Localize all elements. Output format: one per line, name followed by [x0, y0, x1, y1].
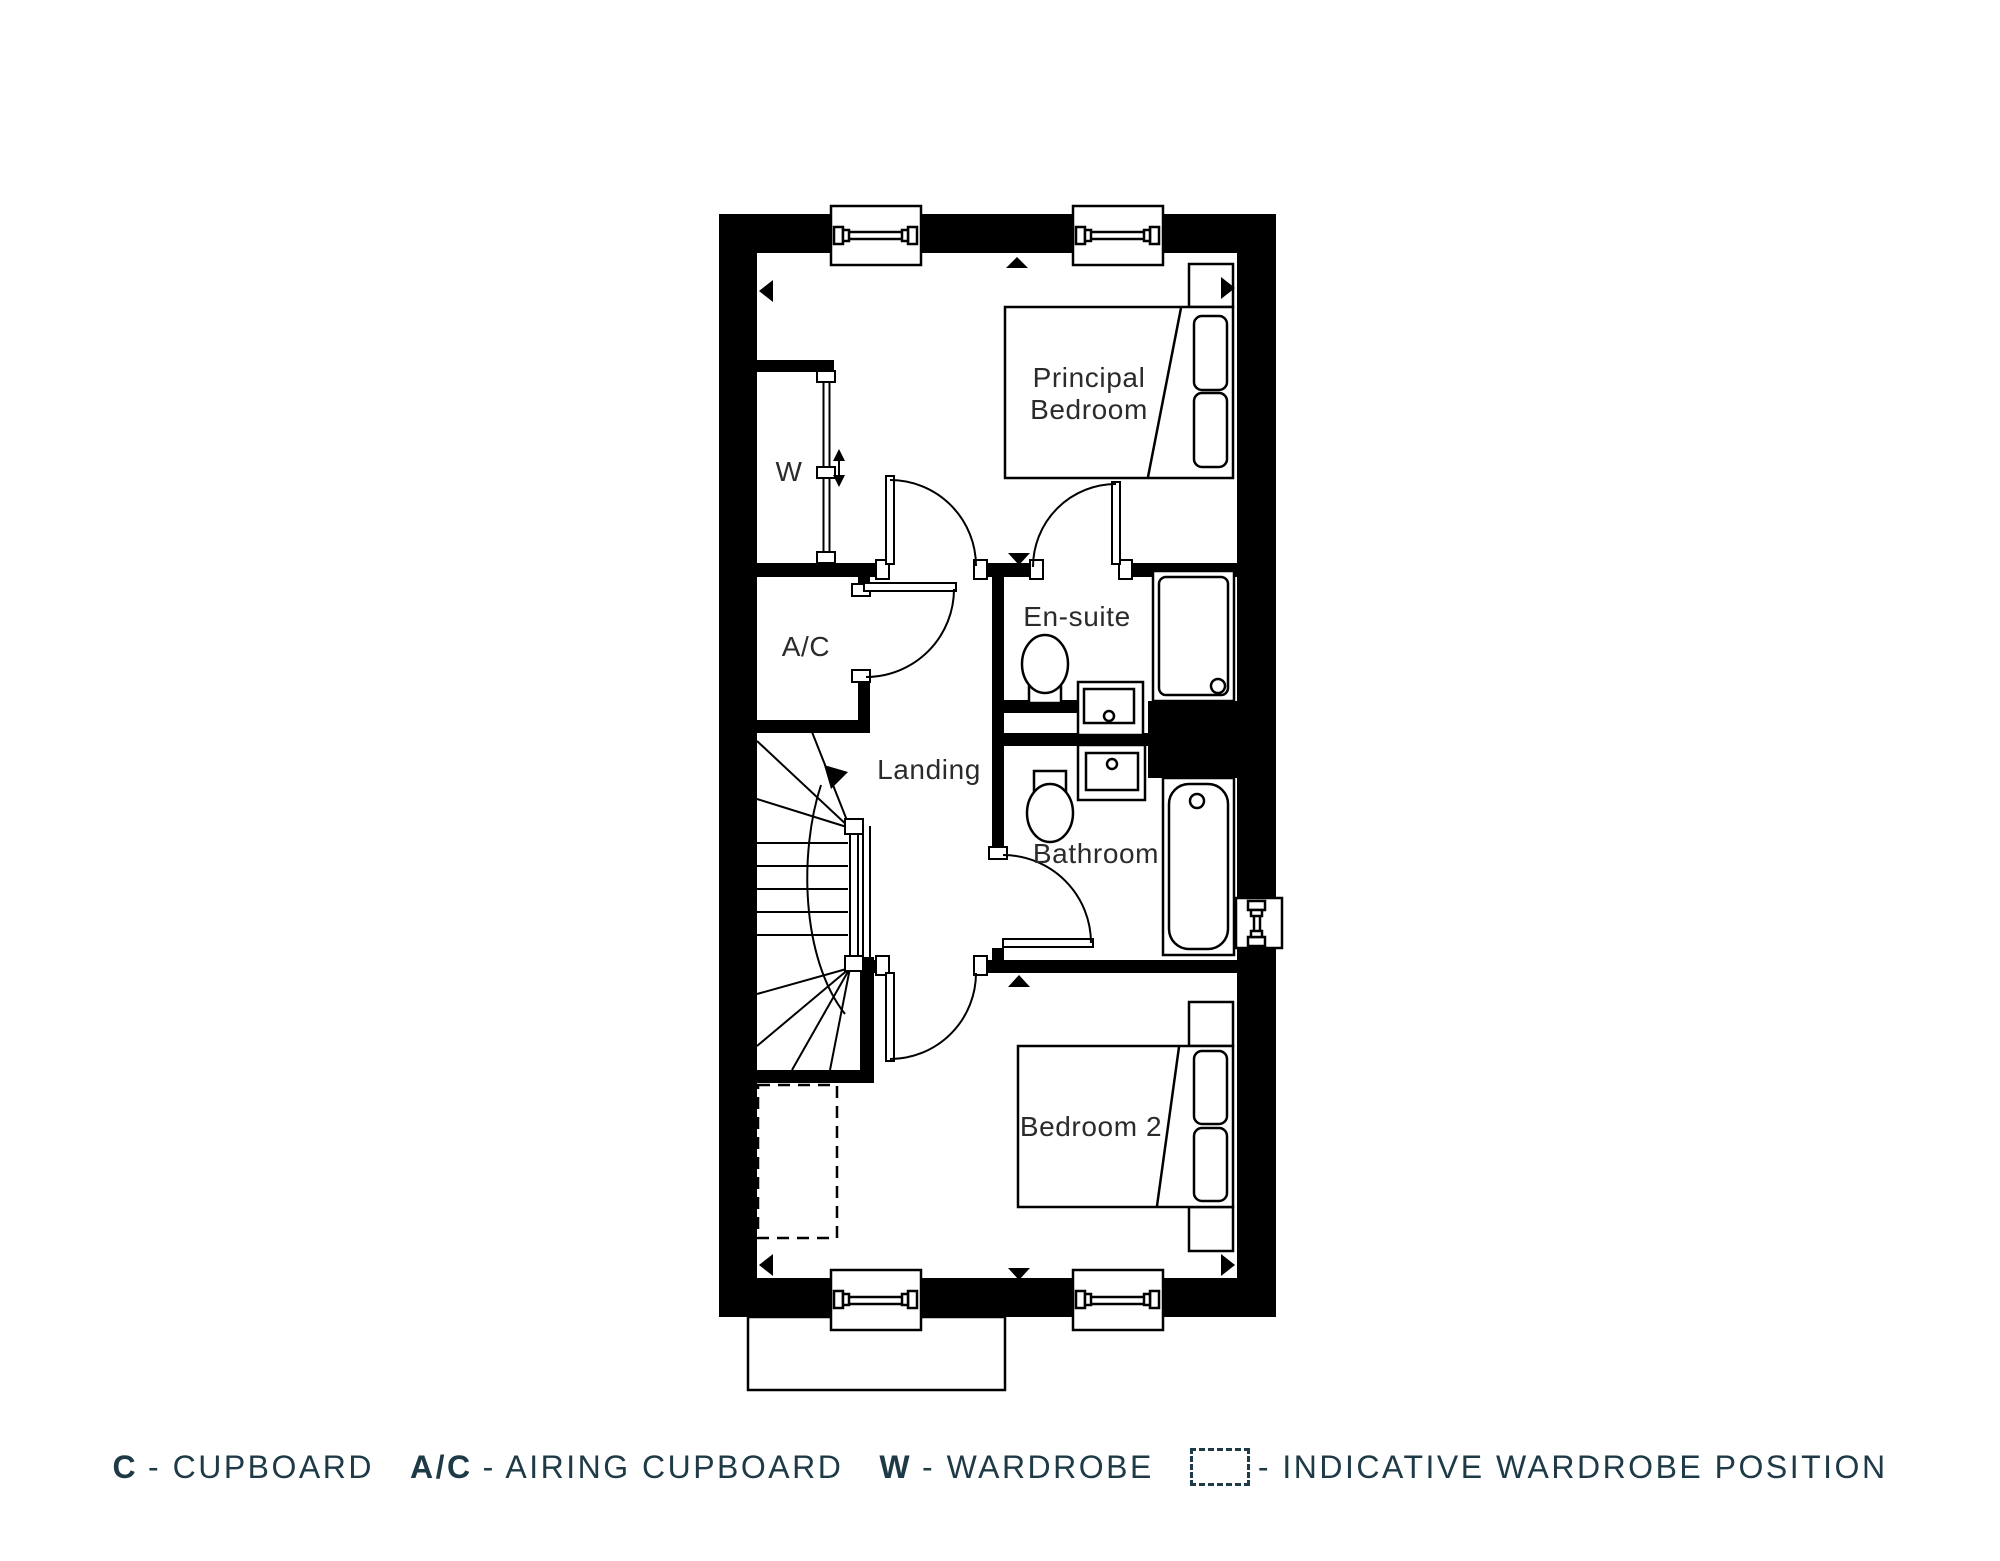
marker-triangle-icon	[759, 280, 773, 302]
wall-left	[719, 214, 757, 1317]
shower-icon	[1153, 571, 1234, 701]
wall-stairs-bottom	[757, 1070, 862, 1083]
floor-plan-canvas: Principal Bedroom W A/C En-suite Landing…	[0, 0, 2000, 1561]
legend: C - CUPBOARD A/C - AIRING CUPBOARD W - W…	[0, 1448, 2000, 1486]
label-principal-bedroom-line2: Bedroom	[1030, 394, 1148, 425]
legend-key: W	[879, 1449, 912, 1486]
bedside-table	[1189, 1002, 1233, 1046]
sink-icon	[1078, 682, 1143, 735]
legend-key: A/C	[410, 1449, 473, 1486]
stair-newel	[845, 956, 863, 971]
marker-triangle-icon	[1006, 257, 1028, 268]
label-ensuite: En-suite	[1023, 601, 1131, 632]
stair-winder	[757, 799, 850, 828]
door-airing-cupboard	[864, 583, 956, 677]
window-icon-top-right	[1073, 206, 1163, 265]
window-icon-bottom-left	[831, 1270, 921, 1330]
pillow	[1194, 1051, 1227, 1124]
door-principal-bedroom	[886, 476, 976, 566]
legend-item-wardrobe: W - WARDROBE	[879, 1449, 1154, 1486]
indicative-wardrobe-swatch-icon	[1190, 1448, 1250, 1486]
pillow	[1194, 393, 1227, 467]
stair-winder	[792, 968, 850, 1070]
wall-top	[719, 214, 1276, 253]
label-wardrobe: W	[775, 456, 802, 487]
stair-winder	[757, 741, 850, 828]
legend-label: - WARDROBE	[922, 1449, 1154, 1486]
toilet-icon	[1022, 635, 1068, 703]
wall-bottom	[719, 1278, 1276, 1317]
indicative-wardrobe-position-box	[758, 1085, 837, 1238]
wall-stairs-top	[757, 720, 870, 733]
wall-landing-ensuite	[992, 577, 1004, 849]
staircase	[757, 732, 870, 1070]
label-principal-bedroom-line1: Principal	[1033, 362, 1146, 393]
marker-triangle-icon	[1008, 975, 1030, 987]
label-bedroom2: Bedroom 2	[1020, 1111, 1162, 1142]
wall-right	[1237, 214, 1276, 1317]
stair-newel	[845, 819, 863, 834]
wall-stairs-right	[860, 957, 874, 1083]
legend-item-indicative-wardrobe: - INDICATIVE WARDROBE POSITION	[1190, 1448, 1888, 1486]
legend-item-cupboard: C - CUPBOARD	[112, 1449, 374, 1486]
window-icon-top-left	[831, 206, 921, 265]
pillow	[1194, 1128, 1227, 1201]
wardrobe-sliding-door	[817, 371, 845, 563]
toilet-icon	[1027, 771, 1073, 842]
bedside-table	[1189, 1207, 1233, 1251]
legend-label: - AIRING CUPBOARD	[483, 1449, 844, 1486]
door-bedroom2	[886, 973, 976, 1061]
marker-triangle-icon	[759, 1254, 773, 1276]
legend-label: - CUPBOARD	[148, 1449, 374, 1486]
wall-bedroom-door-right	[987, 563, 1032, 577]
bathtub-icon	[1163, 778, 1234, 955]
window-icon-bottom-right	[1073, 1270, 1163, 1330]
label-airing-cupboard: A/C	[782, 631, 830, 662]
legend-label: - INDICATIVE WARDROBE POSITION	[1258, 1449, 1888, 1486]
door-ensuite	[1033, 482, 1120, 567]
window-icon-right-wall	[1236, 898, 1282, 948]
marker-triangle-icon	[1221, 1254, 1235, 1276]
legend-key: C	[112, 1449, 138, 1486]
wall-bathroom-bedroom2	[987, 960, 1237, 973]
label-landing: Landing	[877, 754, 981, 785]
sink-icon	[1078, 745, 1145, 800]
pillow	[1194, 316, 1227, 390]
wall-bedroom-door-left	[757, 563, 878, 577]
wall-service-block	[1148, 701, 1237, 778]
legend-item-airing-cupboard: A/C - AIRING CUPBOARD	[410, 1449, 843, 1486]
label-bathroom: Bathroom	[1033, 838, 1159, 869]
floor-plan-svg: Principal Bedroom W A/C En-suite Landing…	[0, 0, 2000, 1561]
stairs-up-arrowhead-icon	[824, 765, 848, 789]
